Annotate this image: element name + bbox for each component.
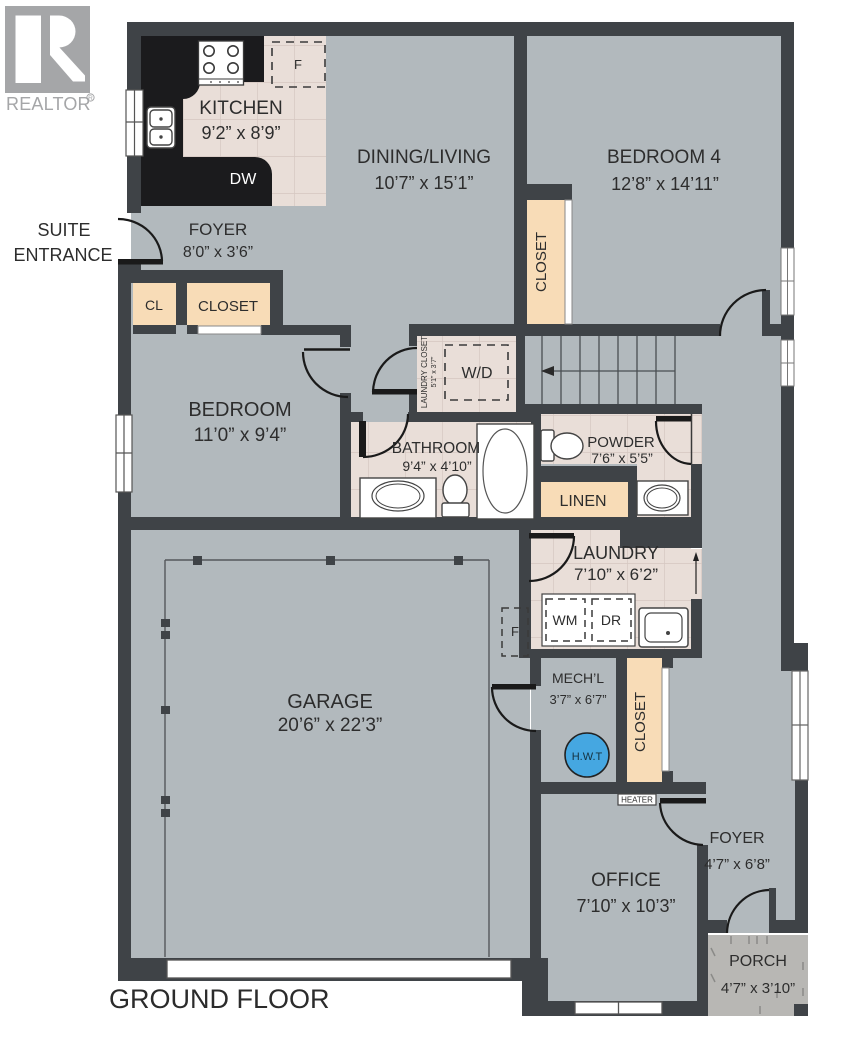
svg-text:DR: DR: [601, 612, 621, 628]
svg-text:12’8” x 14’11”: 12’8” x 14’11”: [611, 174, 719, 194]
svg-text:9’2” x 8’9”: 9’2” x 8’9”: [201, 123, 280, 143]
svg-text:11’0” x 9’4”: 11’0” x 9’4”: [194, 425, 287, 446]
svg-text:7’10” x 10’3”: 7’10” x 10’3”: [576, 896, 675, 916]
svg-text:F: F: [511, 624, 519, 639]
svg-text:BEDROOM 4: BEDROOM 4: [607, 147, 721, 168]
svg-text:10’7” x 15’1”: 10’7” x 15’1”: [374, 173, 473, 193]
svg-text:DINING/LIVING: DINING/LIVING: [357, 147, 491, 168]
svg-text:4’7” x 3’10”: 4’7” x 3’10”: [721, 980, 795, 997]
svg-text:7’6” x 5’5”: 7’6” x 5’5”: [591, 450, 653, 466]
svg-text:W/D: W/D: [461, 365, 492, 382]
svg-text:7’10” x 6’2”: 7’10” x 6’2”: [574, 565, 658, 584]
svg-text:KITCHEN: KITCHEN: [199, 98, 282, 119]
svg-text:GARAGE: GARAGE: [287, 691, 373, 713]
svg-text:4’7” x 6’8”: 4’7” x 6’8”: [704, 856, 770, 873]
svg-text:F: F: [294, 57, 302, 72]
svg-text:SUITE: SUITE: [37, 220, 90, 240]
svg-text:3’7” x 6’7”: 3’7” x 6’7”: [549, 692, 606, 707]
svg-text:BATHROOM: BATHROOM: [392, 440, 480, 457]
svg-text:ENTRANCE: ENTRANCE: [13, 245, 112, 265]
svg-text:REALTOR: REALTOR: [6, 94, 91, 114]
svg-text:GROUND FLOOR: GROUND FLOOR: [109, 984, 330, 1014]
svg-text:20’6” x 22’3”: 20’6” x 22’3”: [278, 715, 383, 736]
svg-text:HEATER: HEATER: [621, 796, 653, 805]
svg-text:CL: CL: [145, 297, 163, 313]
svg-text:WM: WM: [553, 612, 578, 628]
svg-text:POWDER: POWDER: [587, 434, 655, 451]
svg-text:OFFICE: OFFICE: [591, 870, 661, 891]
svg-text:9’4” x 4’10”: 9’4” x 4’10”: [402, 458, 472, 474]
svg-text:PORCH: PORCH: [729, 953, 787, 970]
svg-text:CLOSET: CLOSET: [533, 232, 550, 292]
svg-text:MECH’L: MECH’L: [552, 670, 604, 686]
svg-text:LAUNDRY: LAUNDRY: [573, 543, 659, 563]
svg-text:CLOSET: CLOSET: [198, 298, 258, 315]
svg-text:BEDROOM: BEDROOM: [188, 399, 291, 421]
svg-text:H.W.T: H.W.T: [572, 751, 603, 763]
svg-text:R: R: [88, 95, 93, 102]
svg-text:8’0” x 3’6”: 8’0” x 3’6”: [183, 244, 253, 261]
svg-text:FOYER: FOYER: [709, 830, 764, 847]
svg-text:FOYER: FOYER: [189, 220, 248, 239]
svg-text:LAUNDRY CLOSET: LAUNDRY CLOSET: [420, 336, 429, 408]
svg-text:CLOSET: CLOSET: [632, 692, 649, 752]
svg-text:DW: DW: [230, 171, 258, 188]
svg-text:5’1” x 3’7”: 5’1” x 3’7”: [431, 356, 438, 387]
svg-text:LINEN: LINEN: [559, 493, 606, 510]
